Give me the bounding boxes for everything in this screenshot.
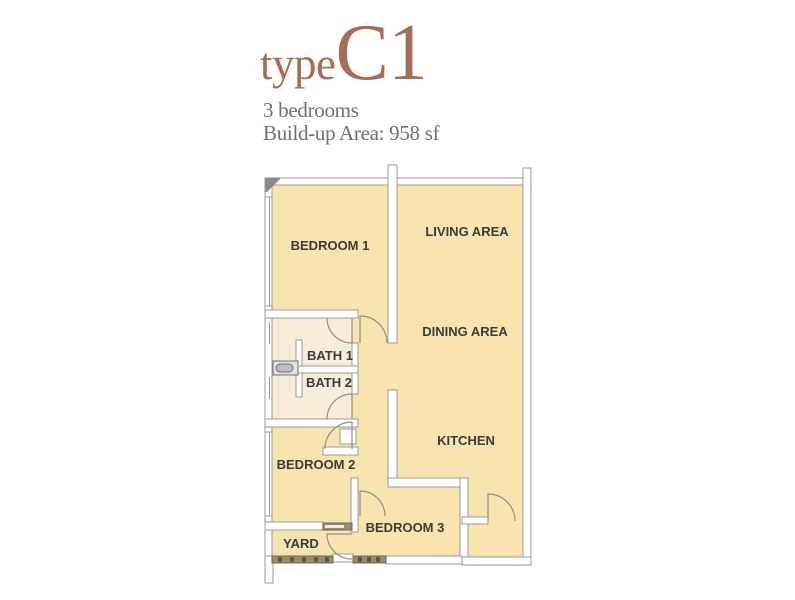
room-label-bedroom-3: BEDROOM 3 (366, 520, 445, 535)
wall-segment (462, 557, 531, 565)
floorplan-page: typeC1 3 bedrooms Build-up Area: 958 sf (0, 0, 795, 600)
wall-segment (523, 168, 531, 563)
fixture-basin (276, 364, 293, 372)
hatch-tick (376, 557, 380, 562)
wall-segment (386, 556, 462, 564)
wall-segment (388, 478, 462, 487)
bath-fixture (273, 361, 298, 375)
room-label-bedroom-1: BEDROOM 1 (291, 238, 370, 253)
title-prefix: type (260, 39, 335, 89)
wall-segment (265, 522, 323, 530)
sliding-window-slot (325, 525, 344, 528)
wall-segment (265, 310, 358, 318)
room-label-bath-1: BATH 1 (307, 348, 353, 363)
wall-segment (388, 165, 397, 343)
room-label-bedroom-2: BEDROOM 2 (277, 457, 356, 472)
title-code: C1 (335, 9, 426, 97)
subtitle-bedrooms: 3 bedrooms (263, 99, 359, 121)
wall-segment (323, 447, 358, 455)
hatch-tick (290, 557, 294, 562)
wall-segment (265, 178, 531, 185)
room-label-bath-2: BATH 2 (306, 375, 352, 390)
hatch-tick (367, 557, 371, 562)
hatch-tick (358, 557, 362, 562)
hatch-tick (302, 557, 306, 562)
wall-segment (265, 178, 272, 563)
room-label-kitchen: KITCHEN (437, 433, 495, 448)
room-label-living-area: LIVING AREA (425, 224, 509, 239)
wall-segment (462, 517, 488, 524)
hatch-tick (278, 557, 282, 562)
wall-segment (388, 390, 397, 479)
room-label-dining-area: DINING AREA (422, 324, 508, 339)
subtitle-area: Build-up Area: 958 sf (263, 122, 439, 144)
wall-segment (296, 366, 358, 373)
floor-plan: BEDROOM 1 LIVING AREA DINING AREA BATH 1… (255, 158, 545, 590)
room-label-yard: YARD (283, 536, 319, 551)
hatch-tick (325, 557, 329, 562)
hatch-tick (314, 557, 318, 562)
wall-segment (340, 429, 356, 444)
